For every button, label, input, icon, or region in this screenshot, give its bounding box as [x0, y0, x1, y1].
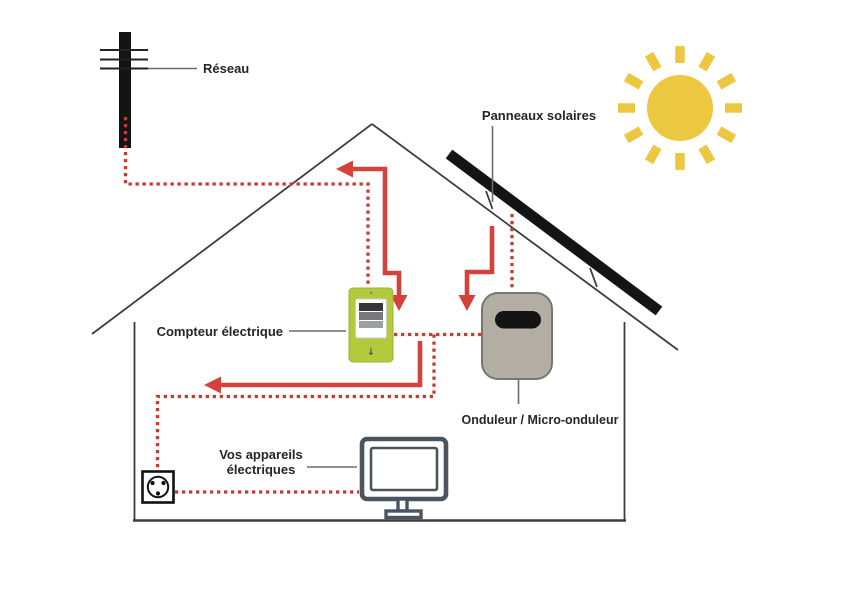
electric-meter-icon: ↓ — [349, 288, 393, 362]
panel-mount-tick — [590, 268, 597, 287]
monitor-icon — [362, 439, 446, 518]
monitor-stand-base — [386, 511, 421, 518]
meter-top-dot — [370, 291, 373, 294]
solar-installation-diagram: ↓ Réseau Panneaux solaires Compteur élec… — [0, 0, 842, 595]
panel-mount-tick — [486, 191, 493, 209]
flow-arrows — [204, 161, 492, 394]
inverter-icon — [482, 293, 552, 379]
arrowhead-left — [336, 161, 353, 178]
arrowhead-left — [204, 377, 221, 394]
inverter-slot — [495, 311, 541, 329]
onduleur-label: Onduleur / Micro-onduleur — [462, 413, 619, 427]
label-leaders — [148, 69, 519, 468]
arrowhead-down — [459, 295, 476, 311]
appareils-label-line2: électriques — [227, 462, 296, 477]
arrow-panel-to-inverter — [467, 226, 492, 296]
monitor-stand-column — [398, 499, 407, 511]
reseau-label: Réseau — [203, 61, 249, 76]
compteur-label: Compteur électrique — [157, 324, 283, 339]
power-outlet-icon — [143, 472, 174, 503]
wire-grid-to-meter — [126, 117, 369, 288]
appareils-label-line1: Vos appareils — [219, 447, 303, 462]
meter-indicator: ↓ — [367, 347, 375, 358]
arrow-grid-exchange — [350, 169, 399, 296]
sun-icon — [618, 46, 742, 170]
solar-panel-icon — [449, 154, 659, 311]
diagram-canvas: ↓ Réseau Panneaux solaires Compteur élec… — [0, 0, 842, 595]
roof-left-line — [92, 124, 372, 334]
utility-pole-icon — [100, 32, 148, 148]
panneaux-solaires-label: Panneaux solaires — [482, 108, 596, 123]
wiring-dotted — [126, 117, 513, 492]
